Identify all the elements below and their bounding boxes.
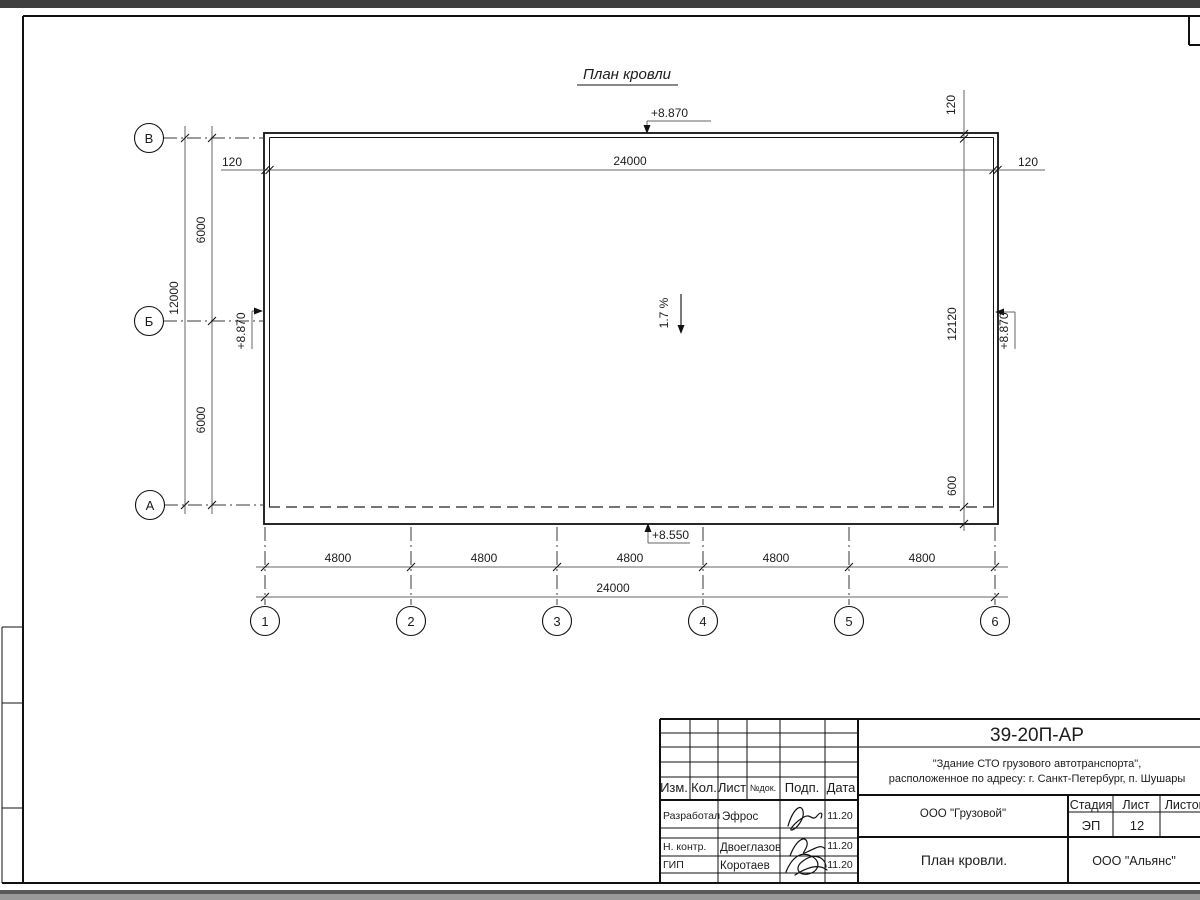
axis-label-5: 5 — [845, 614, 852, 629]
dim-top-overall: 24000 — [613, 154, 647, 168]
tb-col-izm: Изм. — [660, 780, 688, 795]
tb-role-2: Н. контр. — [663, 841, 706, 853]
axis-label-4: 4 — [699, 614, 706, 629]
tb-col-ndok: №док. — [750, 783, 776, 793]
tb-col-kol: Кол. — [691, 780, 717, 795]
axis-label-6: 6 — [991, 614, 998, 629]
tb-stage-value: ЭП — [1082, 818, 1101, 833]
dim-top-right-offset: 120 — [1018, 155, 1038, 169]
axis-label-B: Б — [145, 314, 154, 329]
tb-stage-label: Стадия — [1070, 798, 1113, 812]
tb-name-1: Эфрос — [722, 811, 759, 823]
dim-left-lower: 6000 — [194, 406, 208, 433]
tb-sheet-title: План кровли. — [921, 852, 1007, 868]
viewer-background-strip — [0, 894, 1200, 900]
elevation-right: +8.870 — [997, 312, 1011, 349]
page-edge-shadow — [0, 890, 1200, 894]
dim-bottom-seg-3: 4800 — [617, 551, 644, 565]
tb-project-line1: "Здание СТО грузового автотранспорта", — [933, 758, 1142, 770]
tb-project-line2: расположенное по адресу: г. Санкт-Петерб… — [889, 773, 1186, 785]
dim-top-left-offset: 120 — [222, 155, 242, 169]
tb-sheet-label: Лист — [1122, 798, 1149, 812]
axis-label-1: 1 — [261, 614, 268, 629]
tb-doc-code: 39-20П-АР — [990, 725, 1084, 746]
elevation-top: +8.870 — [651, 106, 688, 120]
tb-sheets-label: Листов — [1165, 798, 1200, 812]
dim-left-upper: 6000 — [194, 216, 208, 243]
elevation-bottom: +8.550 — [652, 528, 689, 542]
dim-right-overhang: 600 — [945, 476, 959, 496]
dim-right-inner: 12120 — [945, 307, 959, 341]
dim-bottom-seg-5: 4800 — [909, 551, 936, 565]
dim-left-overall: 12000 — [167, 281, 181, 315]
tb-date-2: 11.20 — [827, 840, 853, 852]
tb-sheet-value: 12 — [1130, 818, 1144, 833]
dim-bottom-seg-1: 4800 — [325, 551, 352, 565]
tb-date-1: 11.20 — [827, 810, 853, 822]
axis-label-A: А — [146, 498, 155, 513]
axis-label-V: В — [145, 131, 154, 146]
drawing-sheet-viewport: План кровли — [0, 0, 1200, 900]
tb-role-3: ГИП — [663, 859, 684, 871]
elevation-left: +8.870 — [234, 312, 248, 349]
tb-name-3: Коротаев — [720, 860, 770, 872]
dim-right-top-offset: 120 — [944, 95, 958, 115]
tb-client: ООО "Грузовой" — [920, 808, 1006, 820]
axis-label-3: 3 — [553, 614, 560, 629]
tb-company: ООО "Альянс" — [1092, 854, 1176, 868]
dim-bottom-seg-2: 4800 — [471, 551, 498, 565]
tb-name-2: Двоеглазов — [720, 842, 781, 854]
dim-bottom-overall: 24000 — [596, 581, 630, 595]
tb-date-3: 11.20 — [827, 859, 853, 871]
slope-label: 1.7 % — [657, 297, 671, 328]
roof-plan-drawing: План кровли — [0, 0, 1200, 900]
dim-bottom-seg-4: 4800 — [763, 551, 790, 565]
tb-role-1: Разработал — [663, 810, 720, 822]
tb-col-podp: Подп. — [785, 780, 820, 795]
plan-title: План кровли — [583, 66, 672, 83]
axis-label-2: 2 — [407, 614, 414, 629]
tb-col-list: Лист — [718, 780, 746, 795]
tb-col-data: Дата — [827, 780, 857, 795]
